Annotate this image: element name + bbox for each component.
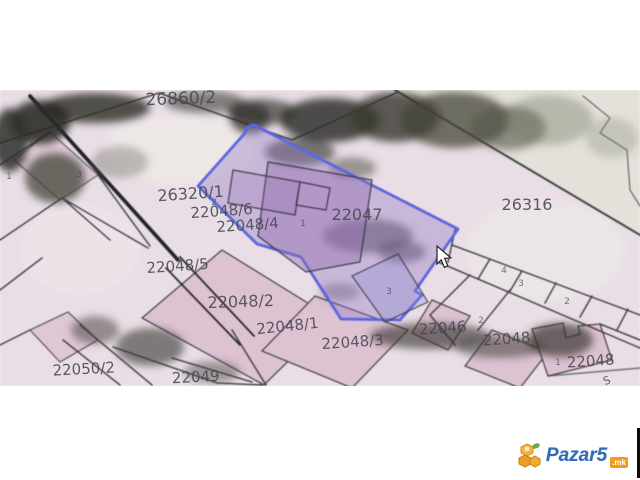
small-num-1: 1: [28, 139, 34, 149]
small-num-3: 3: [518, 279, 524, 289]
logo-tld-badge: .mk: [610, 457, 628, 468]
cadastral-map[interactable]: 26860/226320/122048/622048/4220472631622…: [0, 0, 640, 480]
parcel-label-22048: 22048: [482, 328, 531, 349]
small-num-2: 2: [564, 297, 570, 307]
logo-brand-text: Pazar5: [546, 445, 607, 467]
parcel-label-22049: 22049: [171, 367, 220, 387]
parcel-label-22048/2: 22048/2: [207, 291, 274, 312]
honeycomb-bee-icon: [518, 442, 544, 470]
parcel-label-22046: 22046: [418, 317, 467, 338]
small-num-1: 1: [6, 172, 12, 182]
small-num-3: 3: [386, 287, 392, 297]
small-num-1: 1: [300, 219, 306, 229]
pazar5-logo[interactable]: Pazar5 .mk: [516, 441, 630, 471]
map-area[interactable]: [0, 90, 640, 388]
small-num-3: 3: [76, 170, 82, 180]
parcel-label-26316: 26316: [502, 195, 553, 214]
parcel-label-26860/2: 26860/2: [145, 88, 216, 110]
parcel-label-22047: 22047: [332, 205, 383, 224]
small-num-2: 2: [478, 316, 484, 326]
parcel-label-22050/2: 22050/2: [52, 358, 115, 379]
small-num-1: 1: [555, 358, 561, 368]
small-num-4: 4: [501, 266, 507, 276]
small-num-2: 2: [211, 198, 217, 208]
parcel-label-22048: 22048: [566, 350, 615, 371]
